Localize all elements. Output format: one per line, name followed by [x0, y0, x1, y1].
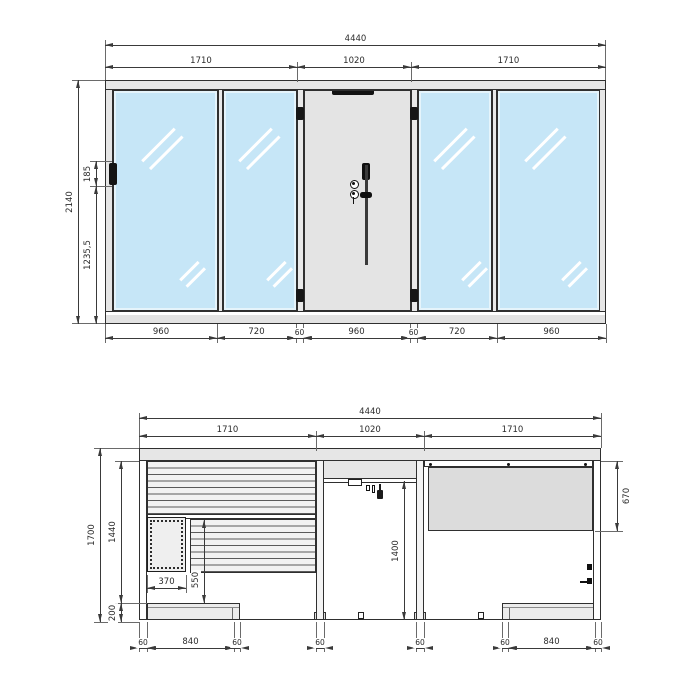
extension-line	[217, 324, 218, 343]
bottom-sill	[106, 311, 605, 323]
dim-heater-zone-height: 550	[204, 520, 205, 603]
leveling-foot-icon	[478, 612, 484, 619]
door-panel	[304, 90, 411, 311]
extension-line	[147, 575, 148, 593]
bench-right	[502, 603, 601, 620]
dim-hinge-to-floor: 1235,5	[96, 186, 97, 324]
extension-line	[601, 461, 623, 462]
floor-line	[139, 619, 601, 620]
dim-panel: 960	[105, 338, 217, 339]
extension-line	[601, 413, 602, 448]
screw-dot-icon	[429, 463, 432, 466]
dim-total-height: 1700	[100, 448, 101, 622]
dim-heater-width: 370	[147, 588, 186, 589]
door-post-left	[297, 90, 304, 311]
dim-bench-post: 60	[234, 648, 240, 649]
dim-hinge-zone: 185	[96, 161, 97, 186]
wood-slat-backrest	[190, 519, 316, 573]
dim-panel: 960	[497, 338, 606, 339]
glass-panel	[418, 90, 492, 311]
shower-control-box	[348, 479, 362, 486]
hinge-icon	[587, 564, 592, 570]
dim-bench-length: 840	[147, 648, 234, 649]
mixer-knob-icon	[350, 180, 359, 189]
dim-bench-height: 200	[121, 603, 122, 622]
hand-shower-icon	[377, 490, 383, 499]
hook-icon	[366, 485, 370, 491]
extension-line	[606, 324, 607, 343]
rail-clamp-icon	[360, 192, 372, 198]
dim-bench-length: 840	[508, 648, 595, 649]
dim-bench-post: 60	[139, 648, 147, 649]
top-frame-rail	[106, 81, 605, 90]
dim-section: 1020	[316, 436, 424, 437]
glass-panel	[497, 90, 600, 311]
dim-panel: 60	[296, 338, 303, 339]
door-post-right	[416, 460, 424, 620]
fixed-glass-panel	[428, 467, 593, 531]
door-post-left	[316, 460, 324, 620]
dim-door-post: 60	[316, 648, 324, 649]
dim-section: 1710	[411, 67, 606, 68]
hinge-pin-icon	[580, 581, 588, 583]
extension-line	[497, 324, 498, 343]
door-header	[316, 460, 424, 479]
dim-glass-height: 670	[617, 461, 618, 531]
glass-panel	[223, 90, 297, 311]
dim-overall-width: 4440	[139, 418, 601, 419]
door-post-right	[411, 90, 418, 311]
hinge-icon	[296, 107, 304, 120]
dim-inner-height: 1440	[121, 461, 122, 603]
left-wall	[139, 460, 147, 620]
shower-rail	[365, 165, 368, 265]
right-wall	[593, 460, 601, 620]
screw-dot-icon	[584, 463, 587, 466]
extension-line	[186, 575, 187, 593]
wood-slat-wall	[147, 461, 316, 515]
dim-section: 1020	[297, 67, 411, 68]
dim-panel: 960	[303, 338, 410, 339]
wall-bracket-icon	[109, 163, 117, 185]
extension-line	[105, 324, 106, 343]
technical-drawing: 4440 1710 1020 1710 2140 185 1235,5 960 …	[0, 0, 700, 700]
hook-icon	[372, 485, 375, 493]
dim-panel: 720	[417, 338, 497, 339]
screw-dot-icon	[507, 463, 510, 466]
dim-section: 1710	[424, 436, 601, 437]
dim-section: 1710	[139, 436, 316, 437]
dim-door-post: 60	[416, 648, 424, 649]
left-frame-post	[106, 90, 113, 311]
dim-overall-width: 4440	[105, 45, 606, 46]
glass-panel	[113, 90, 218, 311]
diverter-knob-icon	[350, 190, 359, 199]
sauna-heater	[147, 517, 186, 572]
interior-section-view	[139, 448, 601, 622]
dim-door-height: 1400	[404, 481, 405, 620]
dim-bench-post: 60	[595, 648, 601, 649]
hinge-icon	[296, 289, 304, 302]
dim-panel: 60	[410, 338, 417, 339]
front-elevation-cabin	[105, 80, 606, 324]
hinge-icon	[410, 107, 418, 120]
vent-grille-icon	[332, 91, 374, 95]
dim-section: 1710	[105, 67, 297, 68]
bench-left	[147, 603, 240, 620]
hinge-icon	[410, 289, 418, 302]
extension-line	[595, 531, 623, 532]
leveling-foot-icon	[358, 612, 364, 619]
dim-panel: 720	[217, 338, 296, 339]
dim-overall-height: 2140	[78, 80, 79, 324]
